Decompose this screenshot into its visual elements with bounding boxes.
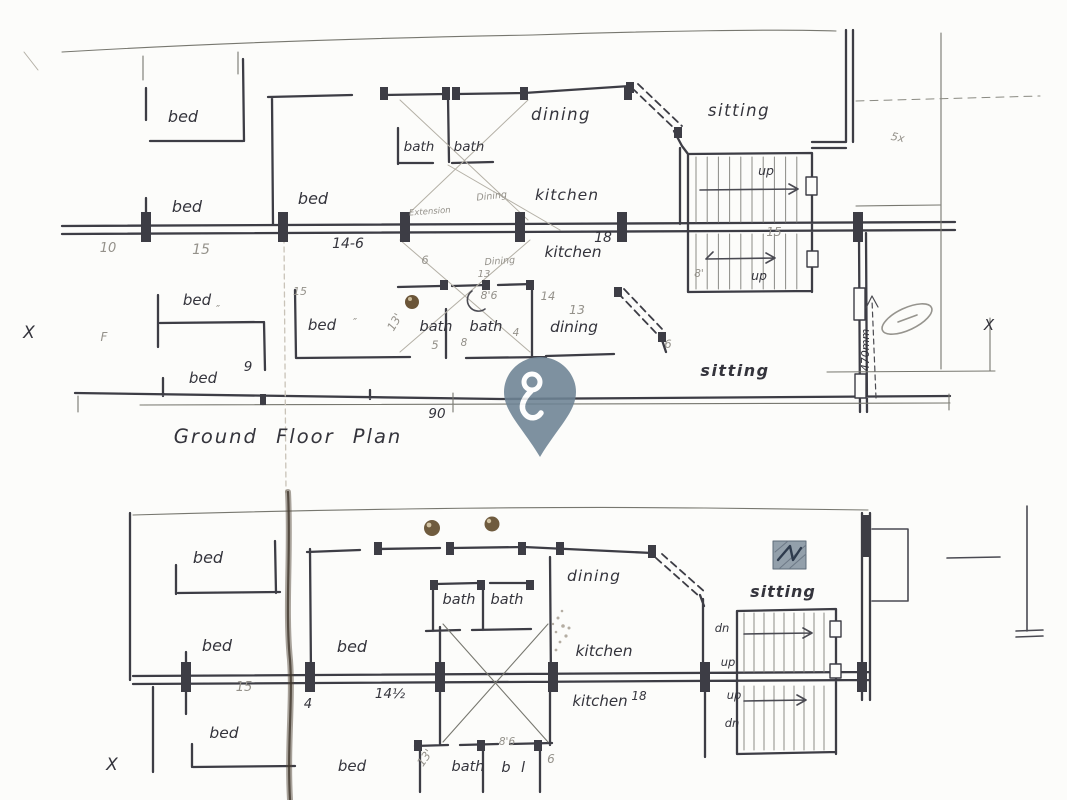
stair-label-dn: dn xyxy=(715,621,730,635)
scanned-floor-plan-page: bedbathbathdiningsittingbedbedkitchenup1… xyxy=(0,0,1067,800)
room-label-partial: l xyxy=(521,760,525,776)
room-label-bed: bed xyxy=(298,189,329,208)
room-label-kitchen: kitchen xyxy=(544,243,601,261)
pencil-ellipse-dash xyxy=(898,315,917,322)
dim-label: 18 xyxy=(594,230,612,246)
dim-label: 6 xyxy=(664,337,671,351)
dim-label: 90 xyxy=(428,406,445,422)
room-label-sitting: sitting xyxy=(708,101,770,120)
section-mark: X xyxy=(983,316,995,334)
pencil-note: Extension xyxy=(409,206,451,219)
dim-label: 15 xyxy=(766,225,781,239)
location-pin-icon[interactable]: location pin xyxy=(504,357,576,457)
room-label-sitting: sitting xyxy=(750,582,816,601)
plan-title: Ground Floor Plan xyxy=(174,425,403,448)
stair-label-up: up xyxy=(751,268,767,283)
dim-label: 8 xyxy=(461,337,468,349)
room-label-sitting: sitting xyxy=(700,361,769,380)
room-label-bath: bath xyxy=(452,759,485,775)
stair-tread-lines xyxy=(696,234,797,289)
first-floor-walls xyxy=(130,513,870,792)
dim-label: 470mm xyxy=(859,329,872,371)
room-label-kitchen: kitchen xyxy=(535,186,599,204)
room-label-bed: bed xyxy=(189,369,218,387)
dim-label: 14½ xyxy=(375,686,405,702)
ink-speckles xyxy=(552,610,571,652)
wall-blob xyxy=(861,515,871,557)
stair-label-up: up xyxy=(721,655,736,669)
bay-window xyxy=(618,84,682,335)
room-label-dining: dining xyxy=(550,318,598,336)
stair-label-dn: dn xyxy=(725,716,740,730)
ground-dashed-lines xyxy=(856,96,1040,101)
room-label-bath: bath xyxy=(470,319,503,335)
dim-label: 8'6 xyxy=(480,289,497,302)
stair-label-up: up xyxy=(758,163,774,178)
bay-window-lower xyxy=(656,554,706,597)
pencil-note: Dining xyxy=(476,189,508,203)
stair-arrow xyxy=(744,695,806,705)
room-label-kitchen: kitchen xyxy=(572,692,627,710)
dim-label: 18 xyxy=(631,689,647,703)
floor-plan-sketch: bedbathbathdiningsittingbedbedkitchenup1… xyxy=(0,0,1067,800)
room-label-bath: bath xyxy=(404,139,435,155)
door-jamb xyxy=(830,664,841,678)
dim-label: 15 xyxy=(236,680,253,695)
door-jamb xyxy=(806,177,817,195)
room-label-bed: bed xyxy=(183,291,212,309)
pushpin-dot xyxy=(405,295,419,309)
door-jamb xyxy=(807,251,818,267)
room-label-bath: bath xyxy=(454,139,485,155)
site-boundary xyxy=(62,30,836,80)
room-label-bed: bed xyxy=(308,316,337,334)
section-mark: X xyxy=(22,323,35,343)
dim-label: 6 xyxy=(421,253,428,267)
stair-tread-lines xyxy=(744,686,824,750)
dim-label: 5 xyxy=(431,338,438,352)
pencil-note: 13 xyxy=(478,269,491,280)
dim-label: 13 xyxy=(569,302,585,317)
room-label-bath: bath xyxy=(443,592,476,608)
wall-opening xyxy=(855,374,866,398)
dim-label: 4 xyxy=(304,697,312,712)
pushpin-highlight xyxy=(487,519,491,523)
room-label-bed: bed xyxy=(337,637,368,656)
dim-label: 4 xyxy=(513,327,520,339)
room-label-bed: bed xyxy=(202,636,233,655)
pencil-note: 5x xyxy=(890,130,906,146)
room-label-bed: bed xyxy=(209,724,238,742)
pushpin-highlight xyxy=(427,523,432,528)
ground-walls xyxy=(62,30,955,412)
dim-label: 13' xyxy=(384,311,405,333)
room-label-bed: bed xyxy=(172,197,203,216)
dim-label: 8'6 xyxy=(499,736,516,748)
stair-label-up: up xyxy=(727,688,742,702)
ditto-mark: ″ xyxy=(353,316,358,329)
room-label-bath: bath xyxy=(491,592,524,608)
room-label-bed: bed xyxy=(338,757,367,775)
hatch-marker-icon xyxy=(773,541,806,569)
site-boundary-lower xyxy=(133,507,868,515)
door-jamb xyxy=(830,621,841,637)
dimension-arrow xyxy=(872,300,876,398)
right-bay-block xyxy=(872,506,1043,637)
section-mark: X xyxy=(105,755,118,775)
stair-tread-lines xyxy=(744,613,824,672)
ditto-mark: ″ xyxy=(216,303,221,316)
stair-arrow-up xyxy=(700,184,798,194)
dim-label: 15 xyxy=(293,285,307,298)
room-label-partial: b xyxy=(501,760,510,776)
wall-opening xyxy=(854,288,865,320)
dim-label: 6 xyxy=(547,752,555,766)
pushpin-dot xyxy=(424,520,440,536)
room-label-bed: bed xyxy=(193,548,224,567)
dim-label: 8' xyxy=(694,268,704,280)
paper-fold-smudge xyxy=(288,492,291,800)
dim-label: 14 xyxy=(541,289,556,303)
dim-label: 10 xyxy=(100,241,117,256)
pencil-note: Dining xyxy=(484,255,515,268)
pencil-note: F xyxy=(101,330,109,344)
room-label-kitchen: kitchen xyxy=(575,642,632,660)
pushpin-dot xyxy=(485,517,500,532)
room-label-dining: dining xyxy=(531,105,591,124)
dim-label: 15 xyxy=(192,242,210,258)
dim-label: 14-6 xyxy=(332,236,364,252)
fold-line-upper xyxy=(284,238,286,492)
room-label-bath: bath xyxy=(420,319,453,335)
dim-label: 9 xyxy=(244,359,253,375)
room-label-bed: bed xyxy=(168,107,199,126)
room-label-dining: dining xyxy=(567,567,621,585)
pushpin-highlight xyxy=(408,297,412,301)
pin-body[interactable] xyxy=(504,357,576,457)
